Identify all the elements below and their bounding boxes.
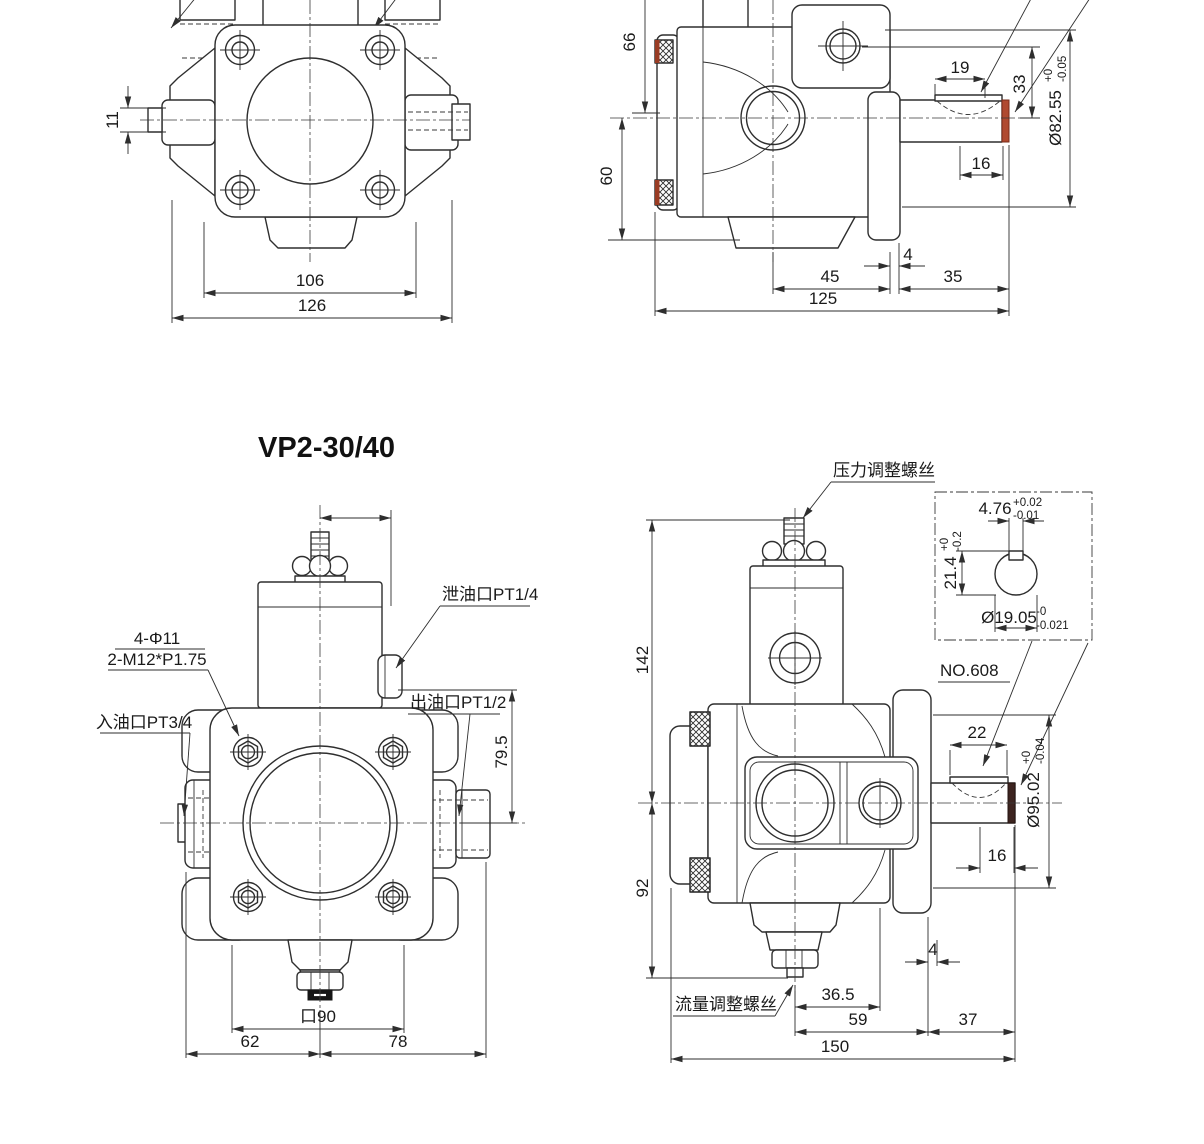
- svg-text:-0.04: -0.04: [1035, 737, 1047, 764]
- dim-detail-shaft-tol-top: -0: [1036, 606, 1046, 618]
- svg-text:+0: +0: [939, 538, 951, 551]
- svg-text:+0: +0: [1043, 69, 1055, 82]
- label-inlet-port: 入油口PT3/4: [96, 713, 192, 732]
- svg-text:+0: +0: [1021, 751, 1033, 764]
- dim-62: 62: [241, 1032, 260, 1051]
- label-thread-holes: 2-M12*P1.75: [107, 650, 206, 669]
- dim-16: 16: [972, 154, 991, 173]
- view-top-side: 66 60 19 33 Ø82.55 +0 -0.05 16 4 45 35 1…: [597, 0, 1092, 316]
- dim-45: 45: [821, 267, 840, 286]
- dim-59: 59: [849, 1010, 868, 1029]
- dim-60: 60: [597, 167, 616, 186]
- dim-36-5: 36.5: [821, 985, 854, 1004]
- view-bottom-side: 压力调整螺丝 142 92 4.76 +0.02 -0.01 21.4 +0 -…: [633, 461, 1092, 1063]
- dim-keylen-22: 22: [968, 723, 987, 742]
- dim-66: 66: [620, 33, 639, 52]
- svg-text:-0.2: -0.2: [952, 531, 964, 551]
- dim-4b: 4: [928, 940, 937, 959]
- dim-key-height: 21.4 +0 -0.2: [939, 531, 964, 589]
- dim-92: 92: [633, 879, 652, 898]
- dim-79-5: 79.5: [492, 735, 511, 768]
- dim-125: 125: [809, 289, 837, 308]
- dim-key-width-tol-bot: -0.01: [1013, 510, 1039, 522]
- dim-stub-11: 11: [103, 111, 122, 129]
- svg-text:21.4: 21.4: [941, 556, 960, 589]
- dim-4: 4: [903, 245, 912, 264]
- dim-35: 35: [944, 267, 963, 286]
- dim-150: 150: [821, 1037, 849, 1056]
- dim-square-90: 口90: [300, 1007, 336, 1026]
- label-outlet-port: 出油口PT1/2: [410, 693, 506, 712]
- dim-33: 33: [1010, 75, 1029, 94]
- drawing-canvas: 11 106 126 66 60 19: [0, 0, 1204, 1144]
- pump-dimension-drawing: 11 106 126 66 60 19: [0, 0, 1204, 1144]
- dim-pilot-dia-95: Ø95.02 +0 -0.04: [1021, 737, 1047, 828]
- dim-pilot-dia: Ø82.55 +0 -0.05: [1043, 56, 1069, 146]
- view-bottom-front: 79.5 口90 62 78 4-Φ11 2-M12*P1.75 入油口PT3/…: [96, 505, 539, 1058]
- svg-text:-0.05: -0.05: [1057, 56, 1069, 82]
- dim-key-width: 4.76: [978, 499, 1011, 518]
- dim-detail-shaft-dia: Ø19.05: [981, 608, 1037, 627]
- dim-142: 142: [633, 646, 652, 674]
- label-flow-screw: 流量调整螺丝: [675, 995, 777, 1014]
- dim-78: 78: [389, 1032, 408, 1051]
- dim-16b: 16: [988, 846, 1007, 865]
- drawing-title: VP2-30/40: [258, 432, 395, 464]
- label-mount-holes: 4-Φ11: [134, 629, 180, 648]
- dim-37: 37: [959, 1010, 978, 1029]
- dim-key-width-tol-top: +0.02: [1013, 497, 1042, 509]
- label-drain-port: 泄油口PT1/4: [442, 585, 538, 604]
- shaft-key-detail: 4.76 +0.02 -0.01 21.4 +0 -0.2 Ø19.05 -0 …: [935, 492, 1092, 640]
- label-pressure-screw: 压力调整螺丝: [833, 461, 935, 480]
- svg-text:Ø95.02: Ø95.02: [1024, 772, 1043, 828]
- dim-overall-126: 126: [298, 296, 326, 315]
- dim-detail-shaft-tol-bot: -0.021: [1036, 620, 1069, 632]
- dim-bolts-106: 106: [296, 271, 324, 290]
- view-top-front: 11 106 126: [103, 0, 470, 323]
- dim-keylen-19: 19: [951, 58, 970, 77]
- label-bearing: NO.608: [940, 661, 999, 680]
- svg-text:Ø82.55: Ø82.55: [1046, 90, 1065, 146]
